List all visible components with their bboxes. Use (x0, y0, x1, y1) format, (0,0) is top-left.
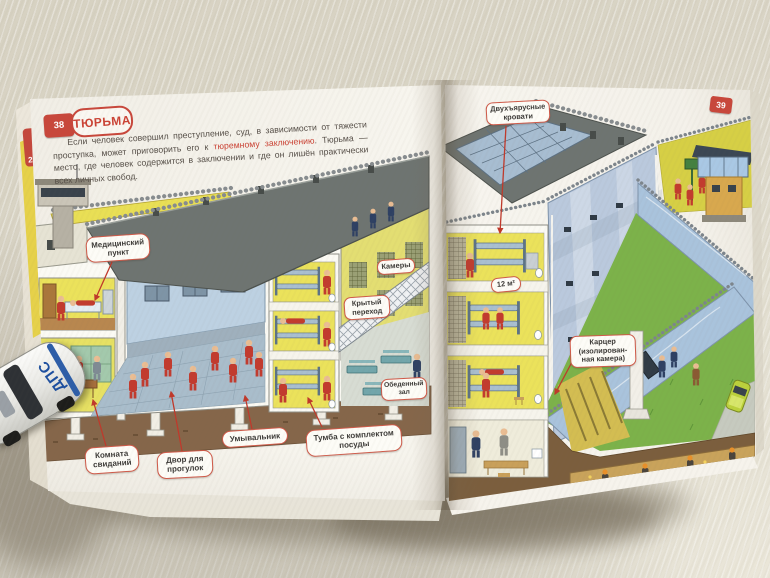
solitary-cell (446, 420, 544, 477)
callout-dining-hall: Обеденный зал (380, 377, 427, 401)
cell-block-right (442, 201, 548, 477)
page-tab-38: 38 (43, 113, 75, 138)
prison-illustration-right (440, 85, 755, 515)
underlying-page-number: 2 (28, 155, 33, 164)
cell-block (269, 254, 339, 412)
page-number-left: 38 (53, 120, 64, 132)
page-tab-39: 39 (709, 96, 733, 115)
callout-cells: Камеры (377, 258, 416, 275)
chapter-title-box: ТЮРЬМА (70, 105, 134, 138)
callout-covered-walkway: Крытый переход (343, 294, 391, 321)
chapter-title: ТЮРЬМА (73, 113, 132, 131)
callout-bunk-beds: Двухъярусные кровати (485, 99, 550, 126)
callout-medical-point: Медицинский пункт (85, 233, 151, 264)
callout-solitary-cell: Карцер (изолирован- ная камера) (569, 334, 636, 368)
photo-of-open-book: 2 (0, 0, 770, 578)
page-number-right: 39 (716, 99, 727, 110)
callout-exercise-yard: Двор для прогулок (156, 450, 213, 480)
medical-room (39, 278, 115, 330)
